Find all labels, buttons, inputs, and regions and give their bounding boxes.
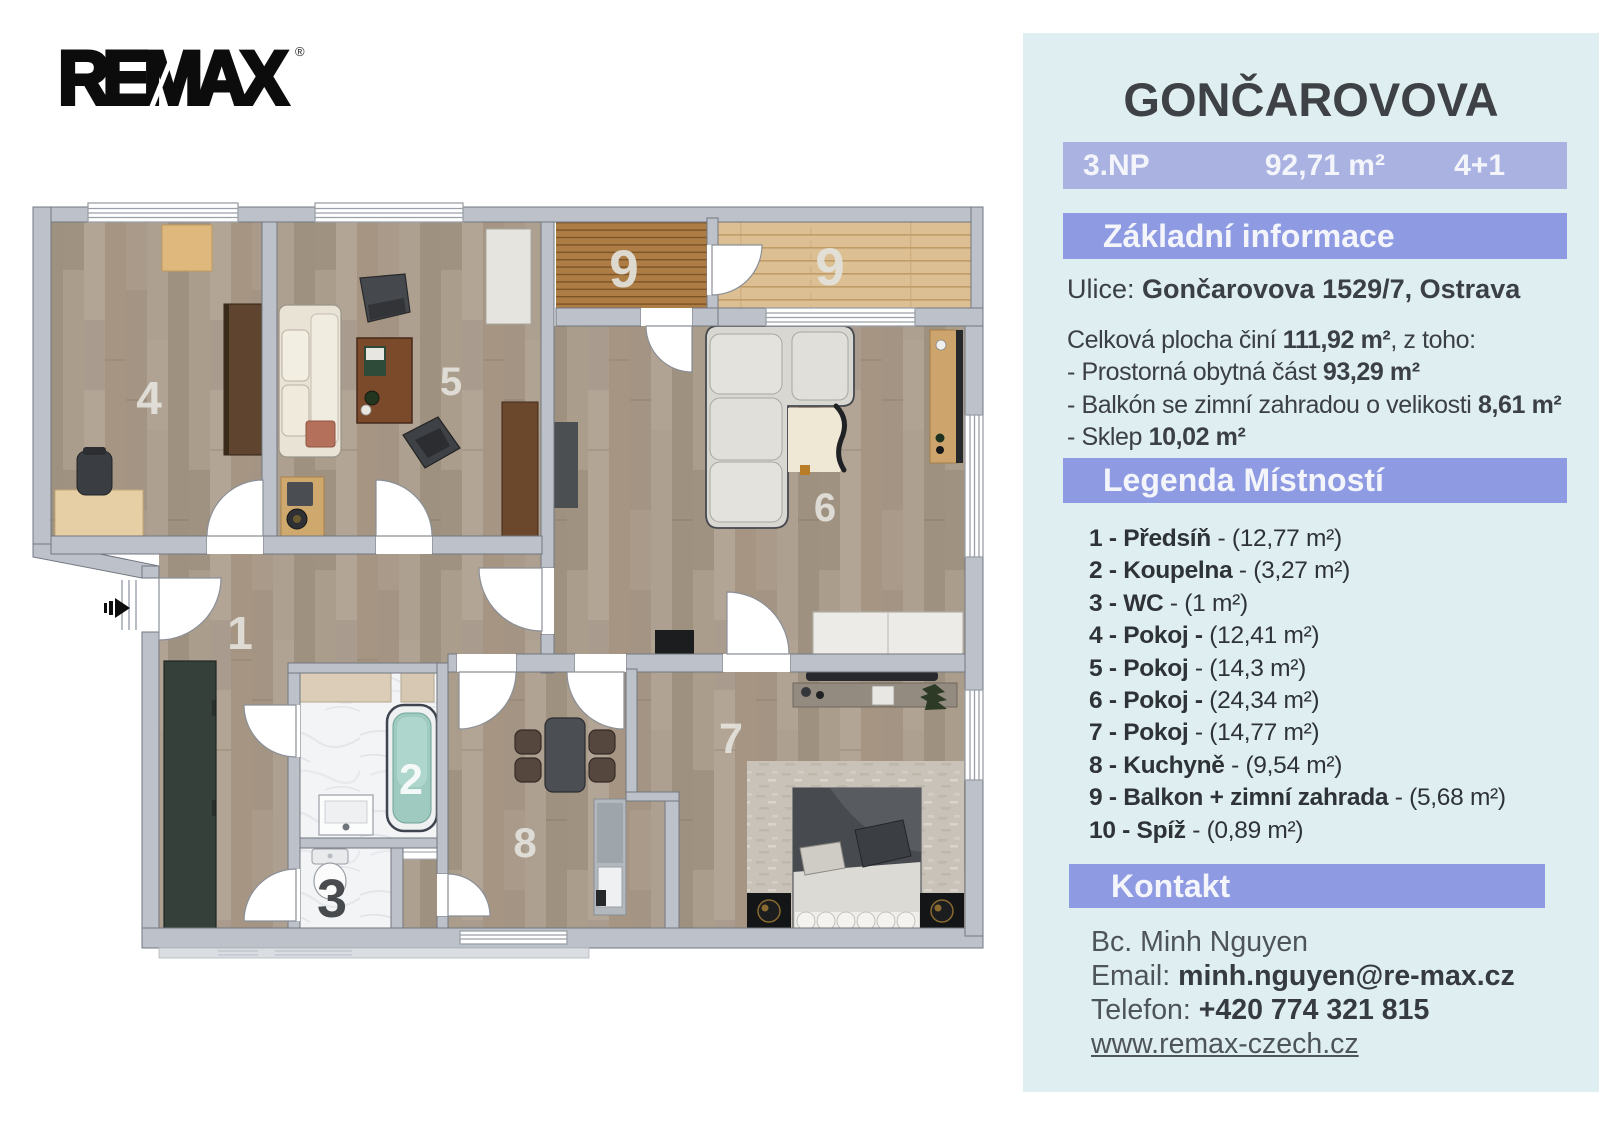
svg-text:®: ®: [295, 44, 305, 59]
svg-text:6: 6: [814, 486, 836, 530]
svg-text:9: 9: [815, 238, 844, 297]
svg-text:2: 2: [399, 756, 423, 804]
svg-text:9: 9: [609, 240, 638, 299]
svg-text:4: 4: [136, 372, 162, 424]
svg-text:5: 5: [440, 360, 462, 404]
svg-text:3: 3: [317, 869, 347, 929]
svg-text:7: 7: [719, 715, 743, 763]
svg-text:8: 8: [513, 819, 536, 866]
svg-text:1: 1: [227, 607, 253, 659]
